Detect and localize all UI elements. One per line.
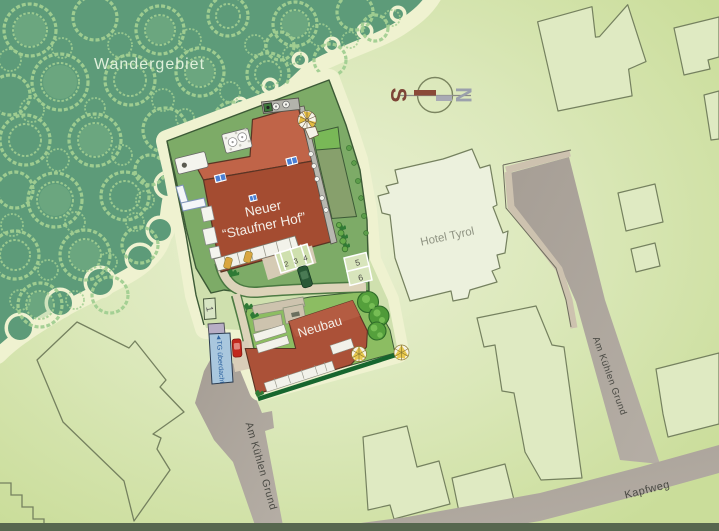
- svg-text:Wandergebiet: Wandergebiet: [94, 56, 205, 73]
- svg-text:N: N: [451, 87, 476, 103]
- svg-text:S: S: [386, 88, 411, 103]
